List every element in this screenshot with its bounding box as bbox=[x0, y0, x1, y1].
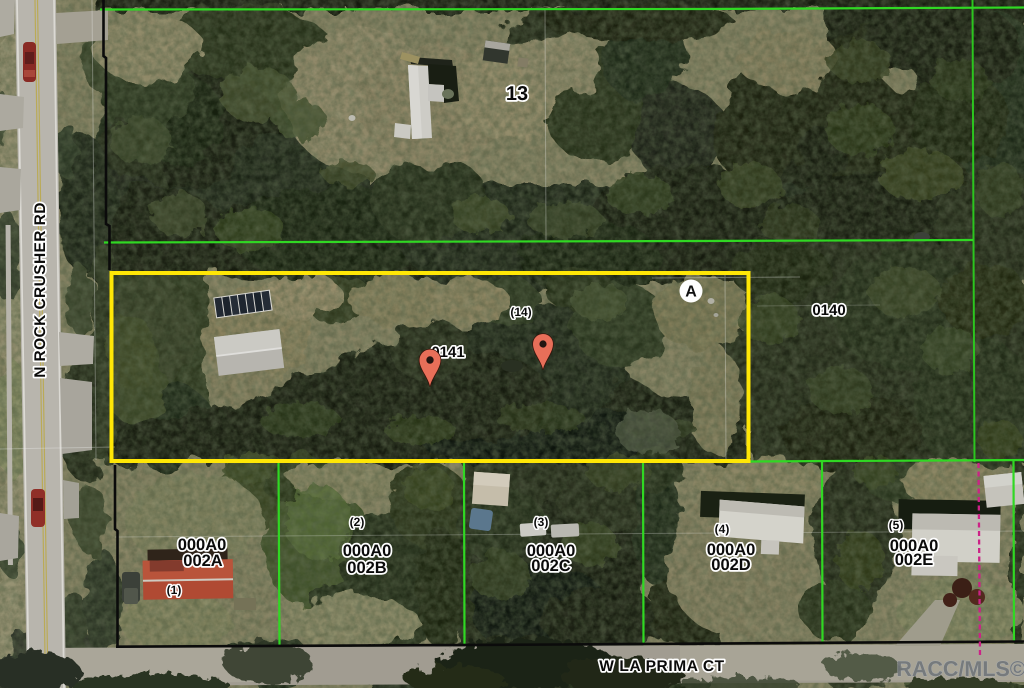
svg-text:N ROCK CRUSHER RD: N ROCK CRUSHER RD bbox=[32, 202, 49, 378]
svg-text:000A0: 000A0 bbox=[343, 542, 392, 560]
svg-text:13: 13 bbox=[506, 83, 528, 105]
svg-text:002B: 002B bbox=[347, 559, 387, 577]
svg-text:002D: 002D bbox=[711, 556, 751, 574]
svg-text:(14): (14) bbox=[510, 305, 531, 319]
svg-text:002A: 002A bbox=[183, 552, 223, 570]
svg-text:RACC/MLS©: RACC/MLS© bbox=[896, 657, 1024, 681]
svg-text:W LA PRIMA CT: W LA PRIMA CT bbox=[599, 658, 724, 675]
svg-text:002E: 002E bbox=[895, 551, 934, 569]
svg-text:(3): (3) bbox=[534, 515, 549, 529]
svg-text:(4): (4) bbox=[715, 522, 730, 536]
svg-text:A: A bbox=[685, 284, 697, 301]
svg-text:(2): (2) bbox=[350, 515, 365, 529]
svg-text:002C: 002C bbox=[531, 557, 571, 575]
svg-text:(5): (5) bbox=[889, 518, 904, 532]
svg-text:(1): (1) bbox=[167, 583, 182, 597]
svg-text:0140: 0140 bbox=[812, 302, 845, 319]
